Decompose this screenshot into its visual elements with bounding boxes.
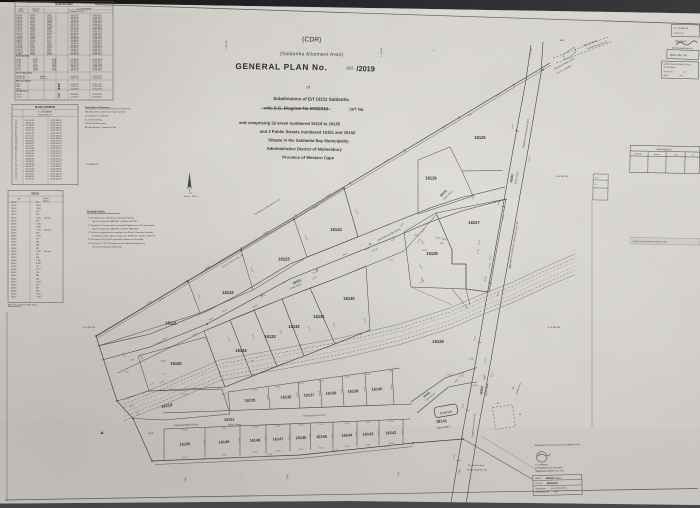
svg-text:20.00 metres wide, vide S.G. D: 20.00 metres wide, vide S.G. Dgm. No. 35…	[92, 235, 156, 238]
svg-text:16142: 16142	[385, 430, 397, 435]
svg-text:979: 979	[36, 211, 39, 213]
svg-text:16147: 16147	[11, 287, 16, 289]
svg-text:+3 681 318.9: +3 681 318.9	[92, 78, 102, 80]
svg-text:Servitude Data: Servitude Data	[16, 55, 30, 58]
svg-text:16151: 16151	[224, 418, 235, 422]
svg-text:38.16: 38.16	[238, 438, 240, 443]
svg-text:1 670: 1 670	[36, 236, 41, 238]
svg-text:Drn.: Drn.	[595, 176, 599, 179]
svg-text:L +85 000: L +85 000	[226, 40, 228, 50]
svg-text:9 584: 9 584	[36, 208, 41, 210]
svg-text:AREAS: AREAS	[31, 193, 40, 196]
svg-text:Metres: Metres	[33, 10, 39, 13]
svg-text:GENERAL PLAN No.: GENERAL PLAN No.	[235, 61, 327, 72]
svg-text:24.35: 24.35	[422, 250, 427, 252]
svg-text:Trig Beacons: Trig Beacons	[16, 91, 28, 93]
svg-text:187.99: 187.99	[384, 446, 390, 448]
svg-text:7.50: 7.50	[389, 259, 393, 261]
svg-text:24.86: 24.86	[377, 430, 379, 435]
svg-text:for Surveyor-General: for Surveyor-General	[672, 47, 693, 51]
svg-text:16136: 16136	[280, 394, 292, 399]
svg-text:16138: 16138	[11, 260, 16, 262]
svg-text:16122: 16122	[222, 290, 234, 295]
svg-text:34.37: 34.37	[266, 395, 268, 400]
svg-text:CWG: CWG	[553, 491, 558, 493]
svg-text:469: 469	[36, 290, 39, 292]
svg-text:16146: 16146	[11, 284, 16, 286]
svg-text:UPLOADNOTE: UPLOADNOTE	[535, 490, 550, 493]
svg-text:16137: 16137	[11, 257, 16, 259]
svg-text:25.00: 25.00	[345, 423, 350, 425]
svg-text:10.35: 10.35	[473, 385, 478, 387]
svg-text:B - 16mm Iron Peg: B - 16mm Iron Peg	[85, 119, 102, 121]
svg-text:Hectares: Hectares	[44, 250, 51, 253]
svg-text:16129: 16129	[11, 233, 16, 235]
svg-text:Scale 1 : 1500: Scale 1 : 1500	[184, 196, 198, 198]
svg-text:+29 218.23: +29 218.23	[70, 96, 79, 98]
svg-text:11.08: 11.08	[130, 359, 135, 361]
svg-text:2. The figure d e f g repre: 2. The figure d e f g represents a Servi…	[88, 224, 155, 227]
svg-text:16128: 16128	[426, 251, 438, 256]
svg-text:Description of Beacons:: Description of Beacons:	[85, 106, 110, 109]
svg-text:16119: 16119	[11, 202, 16, 204]
svg-text:23.28: 23.28	[318, 391, 320, 396]
svg-text:26.22: 26.22	[340, 389, 342, 394]
svg-text:16150: 16150	[11, 297, 16, 299]
svg-text:16133: 16133	[264, 334, 276, 339]
svg-text:3 737: 3 737	[36, 294, 41, 296]
svg-text:4 925: 4 925	[36, 217, 41, 219]
svg-text:16144: 16144	[11, 278, 16, 280]
svg-text:16140: 16140	[11, 266, 16, 268]
svg-text:16137: 16137	[303, 392, 314, 397]
svg-text:+3 681 309.6: +3 681 309.6	[92, 70, 102, 72]
svg-text:16143: 16143	[362, 431, 374, 436]
svg-text:+28 175.78: +28 175.78	[70, 78, 79, 80]
svg-text:P/O. X of the farm: P/O. X of the farm	[468, 464, 484, 467]
svg-text:16149: 16149	[218, 439, 230, 444]
svg-text:25.00: 25.00	[253, 452, 258, 454]
svg-text:35.56: 35.56	[296, 393, 298, 398]
svg-text:35.57: 35.57	[439, 243, 444, 245]
svg-text:16135: 16135	[11, 251, 16, 253]
svg-text:Note: P.S. denotes Public St: Note: P.S. denotes Public Street	[8, 304, 38, 307]
svg-text:25.00: 25.00	[366, 374, 371, 376]
svg-text:16140: 16140	[371, 386, 382, 391]
svg-text:L +86 000: L +86 000	[381, 47, 383, 57]
svg-text:16127: 16127	[468, 220, 480, 225]
svg-text:Administrative District of Mal: Administrative District of Malmesbury	[267, 146, 343, 152]
svg-text:Trig 27: Trig 27	[17, 95, 22, 98]
svg-text:16136: 16136	[11, 254, 16, 256]
svg-text:602: 602	[346, 66, 354, 71]
svg-text:25.00: 25.00	[299, 425, 304, 427]
svg-text:25.00: 25.00	[276, 451, 281, 453]
svg-text:36.61: 36.61	[355, 432, 357, 437]
svg-text:35.44: 35.44	[52, 70, 56, 72]
svg-text:893: 893	[36, 202, 39, 204]
svg-text:16131: 16131	[11, 239, 16, 241]
svg-text:a_29.01.16: a_29.01.16	[673, 33, 684, 35]
svg-text:25.00: 25.00	[253, 390, 258, 392]
svg-text:25.00: 25.00	[276, 426, 281, 428]
svg-text:ANNL.: ANNL.	[663, 74, 669, 77]
svg-text:16132: 16132	[288, 324, 300, 329]
svg-text:Y System WG 19 X: Y System WG 19 X	[38, 113, 53, 116]
svg-text:16135: 16135	[244, 397, 256, 402]
svg-text:775: 775	[36, 239, 39, 241]
svg-text:14.87: 14.87	[442, 239, 447, 241]
svg-text:25.00: 25.00	[366, 422, 371, 424]
svg-text:540: 540	[36, 214, 39, 216]
svg-text:Professional Land Surveyor: Professional Land Surveyor	[535, 466, 562, 470]
svg-text:7 606: 7 606	[36, 226, 41, 228]
svg-text:Y System WG 19 X: Y System WG 19 X	[69, 10, 85, 13]
svg-text:16145: 16145	[11, 281, 16, 283]
svg-text:+30 423.43: +30 423.43	[70, 70, 79, 72]
svg-text:38.58: 38.58	[390, 384, 392, 389]
svg-text:5. The line u1 v T K 2 3 B re: 5. The line u1 v T K 2 3 B represents th…	[88, 242, 146, 245]
svg-text:83.14: 83.14	[202, 458, 207, 460]
svg-text:Flenters Road No. 107: Flenters Road No. 107	[467, 469, 488, 472]
svg-text:25.00: 25.00	[222, 394, 227, 396]
svg-text:No of erven: No of erven	[663, 71, 672, 73]
svg-text:25.00: 25.00	[366, 444, 371, 446]
svg-text:16123: 16123	[278, 257, 290, 262]
svg-text:CO-ORDINATES: CO-ORDINATES	[38, 110, 53, 113]
svg-text:b1.c2: b1.c2	[17, 70, 21, 72]
svg-text:16124: 16124	[11, 217, 16, 219]
svg-text:vide S.G. Dgm. No. 5585/1973: vide S.G. Dgm. No. 5585/1973 : Grid No. …	[92, 228, 139, 230]
svg-text:(CA-DYE) (WGS): (CA-DYE) (WGS)	[551, 487, 567, 490]
svg-text:AMENDMENTS: AMENDMENTS	[656, 148, 672, 151]
svg-text:+3 681 926.9: +3 681 926.9	[92, 88, 102, 90]
svg-text:9 577: 9 577	[36, 269, 41, 271]
svg-text:Servitude Notes:: Servitude Notes:	[87, 211, 105, 214]
svg-text:16124: 16124	[330, 227, 342, 232]
svg-text:199.75 m: 199.75 m	[40, 78, 48, 80]
svg-text:J.T. 71 900378: J.T. 71 900378	[674, 28, 689, 30]
svg-text:14.45: 14.45	[447, 375, 452, 377]
svg-text:S, B, Bd, Bf, L1 - Drill: S, B, Bd, Bf, L1 - Drill Hole	[85, 115, 109, 117]
svg-text:25.00: 25.00	[319, 424, 324, 426]
svg-text:889: 889	[36, 275, 39, 277]
svg-text:31.03: 31.03	[414, 235, 419, 237]
svg-text:G J Williams: G J Williams	[535, 464, 548, 466]
svg-text:8885/867 VOL.1: 8885/867 VOL.1	[546, 478, 563, 480]
svg-text:25.00: 25.00	[183, 457, 188, 459]
svg-text:119.98: 119.98	[267, 454, 273, 456]
svg-text:16129: 16129	[432, 339, 444, 344]
svg-text:A6: A6	[15, 132, 17, 135]
svg-text:16141: 16141	[436, 418, 448, 424]
svg-text:16120: 16120	[170, 361, 182, 366]
svg-text:3. The line h j represents: 3. The line h j represents the centrelin…	[88, 231, 154, 234]
svg-text:25.00: 25.00	[222, 428, 227, 430]
svg-text:+3 681 411.46: +3 681 411.46	[50, 179, 61, 181]
svg-text:Subdivisions of Erf 16111 Sald: Subdivisions of Erf 16111 Saldanha	[273, 96, 349, 102]
svg-text:1. The figure A a b c repre: 1. The figure A a b c represents a Servi…	[88, 217, 135, 220]
svg-text:25.00: 25.00	[253, 427, 258, 429]
svg-text:149.00: 149.00	[33, 70, 38, 72]
svg-text:2 566: 2 566	[36, 223, 41, 225]
svg-text:/2019: /2019	[356, 64, 375, 73]
svg-text:27.51: 27.51	[264, 437, 266, 442]
svg-text:16125: 16125	[11, 220, 16, 222]
svg-text:Hectares: Hectares	[44, 216, 51, 219]
svg-text:L5: L5	[15, 179, 17, 181]
svg-text:16126: 16126	[425, 176, 437, 181]
svg-text:30: 30	[519, 414, 521, 416]
svg-text:26.89: 26.89	[161, 360, 166, 362]
svg-text:W12%s Not Recovered: W12%s Not Recovered	[85, 122, 106, 125]
svg-text:31.52: 31.52	[203, 440, 205, 445]
svg-text:16130: 16130	[11, 236, 16, 238]
svg-text:16146: 16146	[295, 435, 307, 440]
svg-text:16120: 16120	[11, 205, 16, 207]
svg-text:7 706: 7 706	[36, 297, 41, 299]
svg-text:S.G. No.: S.G. No.	[535, 483, 543, 485]
svg-text:600/2019: 600/2019	[547, 481, 558, 485]
svg-text:7 973: 7 973	[36, 281, 41, 283]
svg-text:16139: 16139	[11, 263, 16, 265]
svg-text:SURVEYOR-GENERAL'S OFFICE USE: SURVEYOR-GENERAL'S OFFICE USE	[633, 240, 668, 244]
svg-text:16128: 16128	[11, 229, 16, 231]
svg-text:16126: 16126	[11, 223, 16, 225]
svg-text:vide S.G. Dgm. No. 4088/1953: vide S.G. Dgm. No. 4088/1953 : Grid No. …	[92, 221, 138, 223]
svg-text:4 492: 4 492	[36, 263, 41, 265]
svg-text:31.57: 31.57	[363, 387, 365, 392]
svg-text:16121: 16121	[165, 321, 177, 326]
svg-text:16130: 16130	[343, 296, 355, 301]
svg-text:32: 32	[683, 72, 685, 74]
svg-text:Sewer Line Servitude 2.00m wid: Sewer Line Servitude 2.00m wide.	[92, 245, 123, 248]
svg-text:16143: 16143	[11, 275, 16, 277]
svg-text:550: 550	[36, 220, 39, 222]
svg-text:Angles: Angles	[18, 10, 24, 13]
svg-text:(Saldanha Allotment Area): (Saldanha Allotment Area)	[280, 51, 343, 58]
svg-text:7.50: 7.50	[125, 371, 129, 373]
svg-text:16144: 16144	[341, 432, 353, 437]
svg-text:379: 379	[36, 254, 39, 256]
svg-text:8 552: 8 552	[36, 205, 41, 207]
svg-text:S +0 881 000: S +0 881 000	[83, 327, 96, 329]
svg-text:16141: 16141	[11, 269, 16, 271]
svg-text:25.00: 25.00	[276, 386, 281, 388]
svg-text:MAIN FIGURES: MAIN FIGURES	[55, 3, 73, 6]
svg-text:33.94: 33.94	[401, 429, 403, 434]
svg-text:2019 -06- 1 4: 2019 -06- 1 4	[670, 53, 687, 57]
svg-text:Province of Western Cape: Province of Western Cape	[282, 155, 335, 161]
svg-text:38.83: 38.83	[288, 435, 290, 440]
svg-text:480: 480	[36, 233, 39, 235]
svg-text:BLOCK CORNERS: BLOCK CORNERS	[35, 107, 56, 109]
svg-text:579: 579	[36, 284, 39, 286]
svg-text:All other Beacons - 16mm Iro: All other Beacons - 16mm Iron Peg	[85, 126, 116, 129]
svg-text:16121: 16121	[11, 208, 16, 210]
svg-text:25.00: 25.00	[319, 448, 324, 450]
svg-text:16142: 16142	[11, 272, 16, 274]
svg-text:25.00: 25.00	[389, 371, 394, 373]
svg-text:462: 462	[36, 245, 39, 247]
svg-text:660: 660	[36, 278, 39, 280]
svg-text:30: 30	[497, 403, 499, 405]
svg-text:E +3 681 300: E +3 681 300	[548, 327, 561, 329]
svg-text:25.00: 25.00	[299, 383, 304, 385]
svg-text:S.G.: S.G.	[691, 154, 695, 156]
svg-text:25.00: 25.00	[222, 454, 227, 456]
svg-text:16133: 16133	[11, 245, 16, 247]
svg-text:MHW: MHW	[560, 40, 565, 42]
svg-text:+30 409.88: +30 409.88	[70, 88, 79, 90]
svg-text:16148: 16148	[11, 290, 16, 292]
svg-text:3 771: 3 771	[36, 229, 41, 231]
svg-text:19.99: 19.99	[469, 358, 474, 360]
svg-text:A5: A5	[15, 134, 17, 137]
svg-text:16127: 16127	[11, 226, 16, 228]
svg-text:16138: 16138	[325, 390, 337, 395]
svg-text:25.00: 25.00	[183, 429, 188, 431]
svg-text:Ref. Mks in Plan - 16mm Iron: Ref. Mks in Plan - 16mm Iron Peg in Conc…	[85, 111, 127, 114]
svg-text:Reference Marks: Reference Marks	[16, 81, 31, 83]
svg-text:16150: 16150	[179, 441, 190, 446]
svg-text:(CDR): (CDR)	[302, 36, 321, 43]
svg-text:16122: 16122	[11, 211, 16, 213]
svg-text:16139: 16139	[347, 388, 359, 393]
svg-text:(Public Street): (Public Street)	[228, 423, 242, 426]
svg-text:W12B: W12B	[148, 433, 154, 435]
svg-text:58.93: 58.93	[436, 238, 441, 240]
svg-text:+3 681 860.9: +3 681 860.9	[92, 96, 102, 98]
svg-text:+29 661.10: +29 661.10	[25, 179, 34, 181]
svg-text:16147: 16147	[272, 436, 283, 441]
svg-text:16149: 16149	[11, 294, 16, 296]
svg-text:23.97: 23.97	[308, 434, 310, 439]
svg-text:234.73: 234.73	[332, 449, 338, 451]
svg-text:25.00: 25.00	[345, 446, 350, 448]
svg-text:S +3 680 000: S +3 680 000	[86, 164, 99, 166]
svg-text:9 596: 9 596	[36, 251, 41, 253]
svg-text:Registered number PLS 1143: Registered number PLS 1143	[535, 469, 564, 473]
svg-text:9 182: 9 182	[36, 260, 41, 262]
svg-text:A8: A8	[15, 147, 17, 150]
svg-text:Hectares: Hectares	[44, 228, 51, 231]
svg-text:25.00: 25.00	[299, 449, 304, 451]
svg-text:ALLOTMENTS: ALLOTMENTS	[664, 66, 677, 69]
svg-text:E +3 681 300: E +3 681 300	[556, 176, 569, 178]
svg-text:25.00: 25.00	[389, 421, 394, 423]
svg-text:25.00: 25.00	[319, 380, 324, 382]
svg-text:25.00: 25.00	[389, 443, 394, 445]
svg-text:16123: 16123	[11, 214, 16, 216]
svg-text:643: 643	[36, 257, 39, 259]
svg-text:816: 816	[36, 242, 39, 244]
svg-text:31.84: 31.84	[331, 433, 333, 438]
svg-text:16145: 16145	[316, 434, 328, 439]
svg-text:25.00: 25.00	[345, 377, 350, 379]
svg-text:Intermediary Data: Intermediary Data	[16, 72, 33, 75]
svg-text:4. The figure k1 k2 p1 p2 B r: 4. The figure k1 k2 p1 p2 B represents a…	[88, 238, 144, 241]
svg-text:25.00: 25.00	[183, 394, 188, 396]
svg-text:553: 553	[36, 248, 39, 250]
svg-text:: D/T No.: : D/T No.	[348, 107, 365, 112]
svg-text:File No.: File No.	[535, 478, 542, 480]
svg-text:717: 717	[36, 266, 39, 268]
svg-text:16132: 16132	[11, 242, 16, 244]
svg-text:Compilation: Compilation	[535, 487, 546, 490]
svg-text:16134: 16134	[11, 248, 16, 250]
svg-text:730: 730	[36, 272, 39, 274]
svg-text:16148: 16148	[249, 437, 261, 442]
svg-text:16125: 16125	[474, 135, 486, 140]
svg-text:698: 698	[36, 287, 39, 289]
